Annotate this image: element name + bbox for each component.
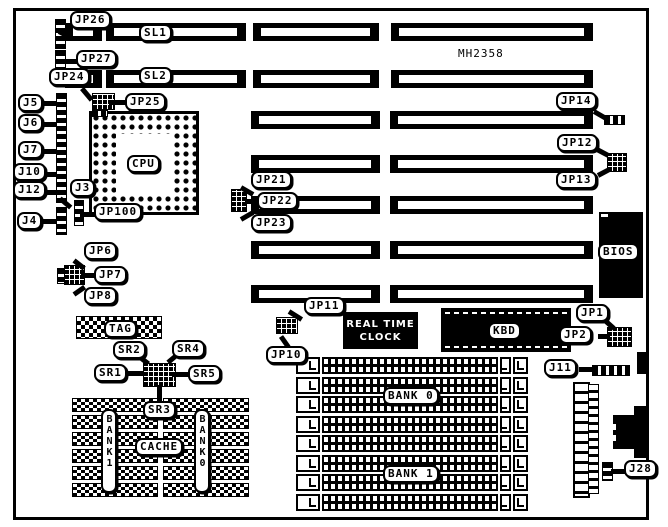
expansion-slot-segment [106, 23, 246, 41]
simm-socket-clip-small [500, 416, 511, 433]
label-jp24: JP24 [49, 68, 90, 86]
label-j6: J6 [18, 114, 43, 132]
simm-socket [322, 416, 498, 433]
label-cpu: CPU [127, 155, 160, 173]
label-j12: J12 [13, 181, 46, 199]
jumper-block-jp1-jp2 [607, 327, 632, 347]
simm-socket-clip-left [296, 416, 320, 433]
expansion-slot-segment [253, 70, 379, 88]
label-jp12: JP12 [557, 134, 598, 152]
callout-tail [126, 371, 144, 376]
connector-pins-j5-j12 [56, 93, 67, 203]
edge-bracket [637, 352, 648, 374]
callout-tail [44, 149, 57, 154]
expansion-slot-segment [253, 23, 379, 41]
label-jp26: JP26 [70, 11, 111, 29]
label-jp14: JP14 [556, 92, 597, 110]
simm-socket-clip-left [296, 435, 320, 452]
din-notch-1 [611, 424, 616, 430]
rtc-line2: CLOCK [343, 331, 418, 344]
expansion-slot-segment [106, 70, 246, 88]
simm-socket-clip-right [513, 494, 528, 511]
callout-tail [80, 212, 95, 217]
simm-socket-clip-right [513, 416, 528, 433]
connector-pins-j11 [592, 365, 630, 376]
label-sl1: SL1 [139, 24, 172, 42]
simm-socket-clip-right [513, 455, 528, 472]
jumper-pins-jp6-aux [57, 268, 65, 284]
simm-socket-clip-small [500, 396, 511, 413]
callout-tail [44, 101, 57, 106]
label-bios: BIOS [598, 243, 639, 261]
label-j5: J5 [18, 94, 43, 112]
label-jp13: JP13 [556, 171, 597, 189]
label-j11: J11 [544, 359, 577, 377]
expansion-slot-segment [251, 241, 380, 259]
label-j28: J28 [624, 460, 657, 478]
callout-tail [44, 122, 57, 127]
callout-tail [172, 372, 189, 377]
expansion-slot-segment [390, 111, 593, 129]
simm-socket-clip-right [513, 435, 528, 452]
label-sl2: SL2 [139, 67, 172, 85]
callout-tail [598, 334, 610, 339]
simm-socket-clip-right [513, 357, 528, 374]
simm-socket-clip-right [513, 396, 528, 413]
simm-socket-clip-small [500, 455, 511, 472]
label-sr3: SR3 [143, 401, 176, 419]
label-jp1: JP1 [576, 304, 609, 322]
label-jp10: JP10 [266, 346, 307, 364]
label-j7: J7 [18, 141, 43, 159]
jumper-pins-jp25-aux [92, 110, 108, 117]
callout-tail [109, 100, 126, 105]
jumper-block-jp10-jp11 [276, 317, 298, 334]
simm-socket-clip-left [296, 474, 320, 491]
rtc-line1: REAL TIME [343, 318, 418, 331]
simm-socket-clip-left [296, 455, 320, 472]
label-jp22: JP22 [257, 192, 298, 210]
label-sr1: SR1 [94, 364, 127, 382]
connector-pins-j4 [56, 207, 67, 235]
simm-socket [322, 357, 498, 374]
label-jp21: JP21 [251, 171, 292, 189]
label-tag: TAG [104, 320, 137, 338]
simm-socket-clip-left [296, 494, 320, 511]
label-j4: J4 [17, 212, 42, 230]
label-jp100: JP100 [94, 203, 142, 221]
expansion-slot-segment [251, 111, 380, 129]
simm-socket-clip-right [513, 474, 528, 491]
simm-socket-clip-right [513, 377, 528, 394]
keyboard-din-connector-body [613, 415, 637, 449]
label-sr4: SR4 [172, 340, 205, 358]
label-j10: J10 [13, 163, 46, 181]
expansion-slot-segment [391, 70, 593, 88]
simm-socket-clip-small [500, 377, 511, 394]
kbd-dash-top [445, 312, 567, 314]
motherboard-diagram: MH2358 CPU BIOS REAL TIME CLOCK KBD TAG … [0, 0, 668, 527]
model-number: MH2358 [458, 47, 504, 60]
callout-tail [579, 367, 594, 372]
din-notch-2 [611, 435, 616, 441]
expansion-slot-segment [390, 196, 593, 214]
label-cache-bank1: BANK1 [101, 409, 117, 493]
callout-tail [40, 219, 56, 224]
simm-socket-clip-small [500, 494, 511, 511]
label-jp8: JP8 [84, 287, 117, 305]
simm-socket-clip-small [500, 474, 511, 491]
power-connector-pins [588, 384, 599, 494]
label-simm-bank1: BANK 1 [383, 465, 439, 483]
label-jp23: JP23 [251, 214, 292, 232]
real-time-clock-chip: REAL TIME CLOCK [343, 312, 418, 349]
label-kbd: KBD [488, 322, 521, 340]
label-j3: J3 [70, 179, 95, 197]
label-jp11: JP11 [304, 297, 345, 315]
simm-socket [322, 494, 498, 511]
simm-socket-clip-left [296, 396, 320, 413]
callout-tail [157, 385, 162, 401]
expansion-slot-segment [391, 23, 593, 41]
label-sr5: SR5 [188, 365, 221, 383]
simm-socket-clip-left [296, 377, 320, 394]
label-jp27: JP27 [76, 50, 117, 68]
jumper-block-jp12-jp13 [607, 153, 627, 172]
label-simm-bank0: BANK 0 [383, 387, 439, 405]
callout-tail [81, 273, 95, 278]
label-jp25: JP25 [125, 93, 166, 111]
kbd-dash-bottom [445, 346, 567, 348]
simm-socket-clip-small [500, 357, 511, 374]
expansion-slot-segment [390, 285, 593, 303]
expansion-slot-segment [390, 241, 593, 259]
label-cache-bank0: BANK0 [194, 409, 210, 493]
label-jp7: JP7 [94, 266, 127, 284]
bios-chip-notch [601, 214, 608, 217]
label-sr2: SR2 [113, 341, 146, 359]
label-jp2: JP2 [559, 326, 592, 344]
simm-socket-clip-small [500, 435, 511, 452]
label-cache: CACHE [135, 438, 183, 456]
label-jp6: JP6 [84, 242, 117, 260]
simm-socket [322, 435, 498, 452]
